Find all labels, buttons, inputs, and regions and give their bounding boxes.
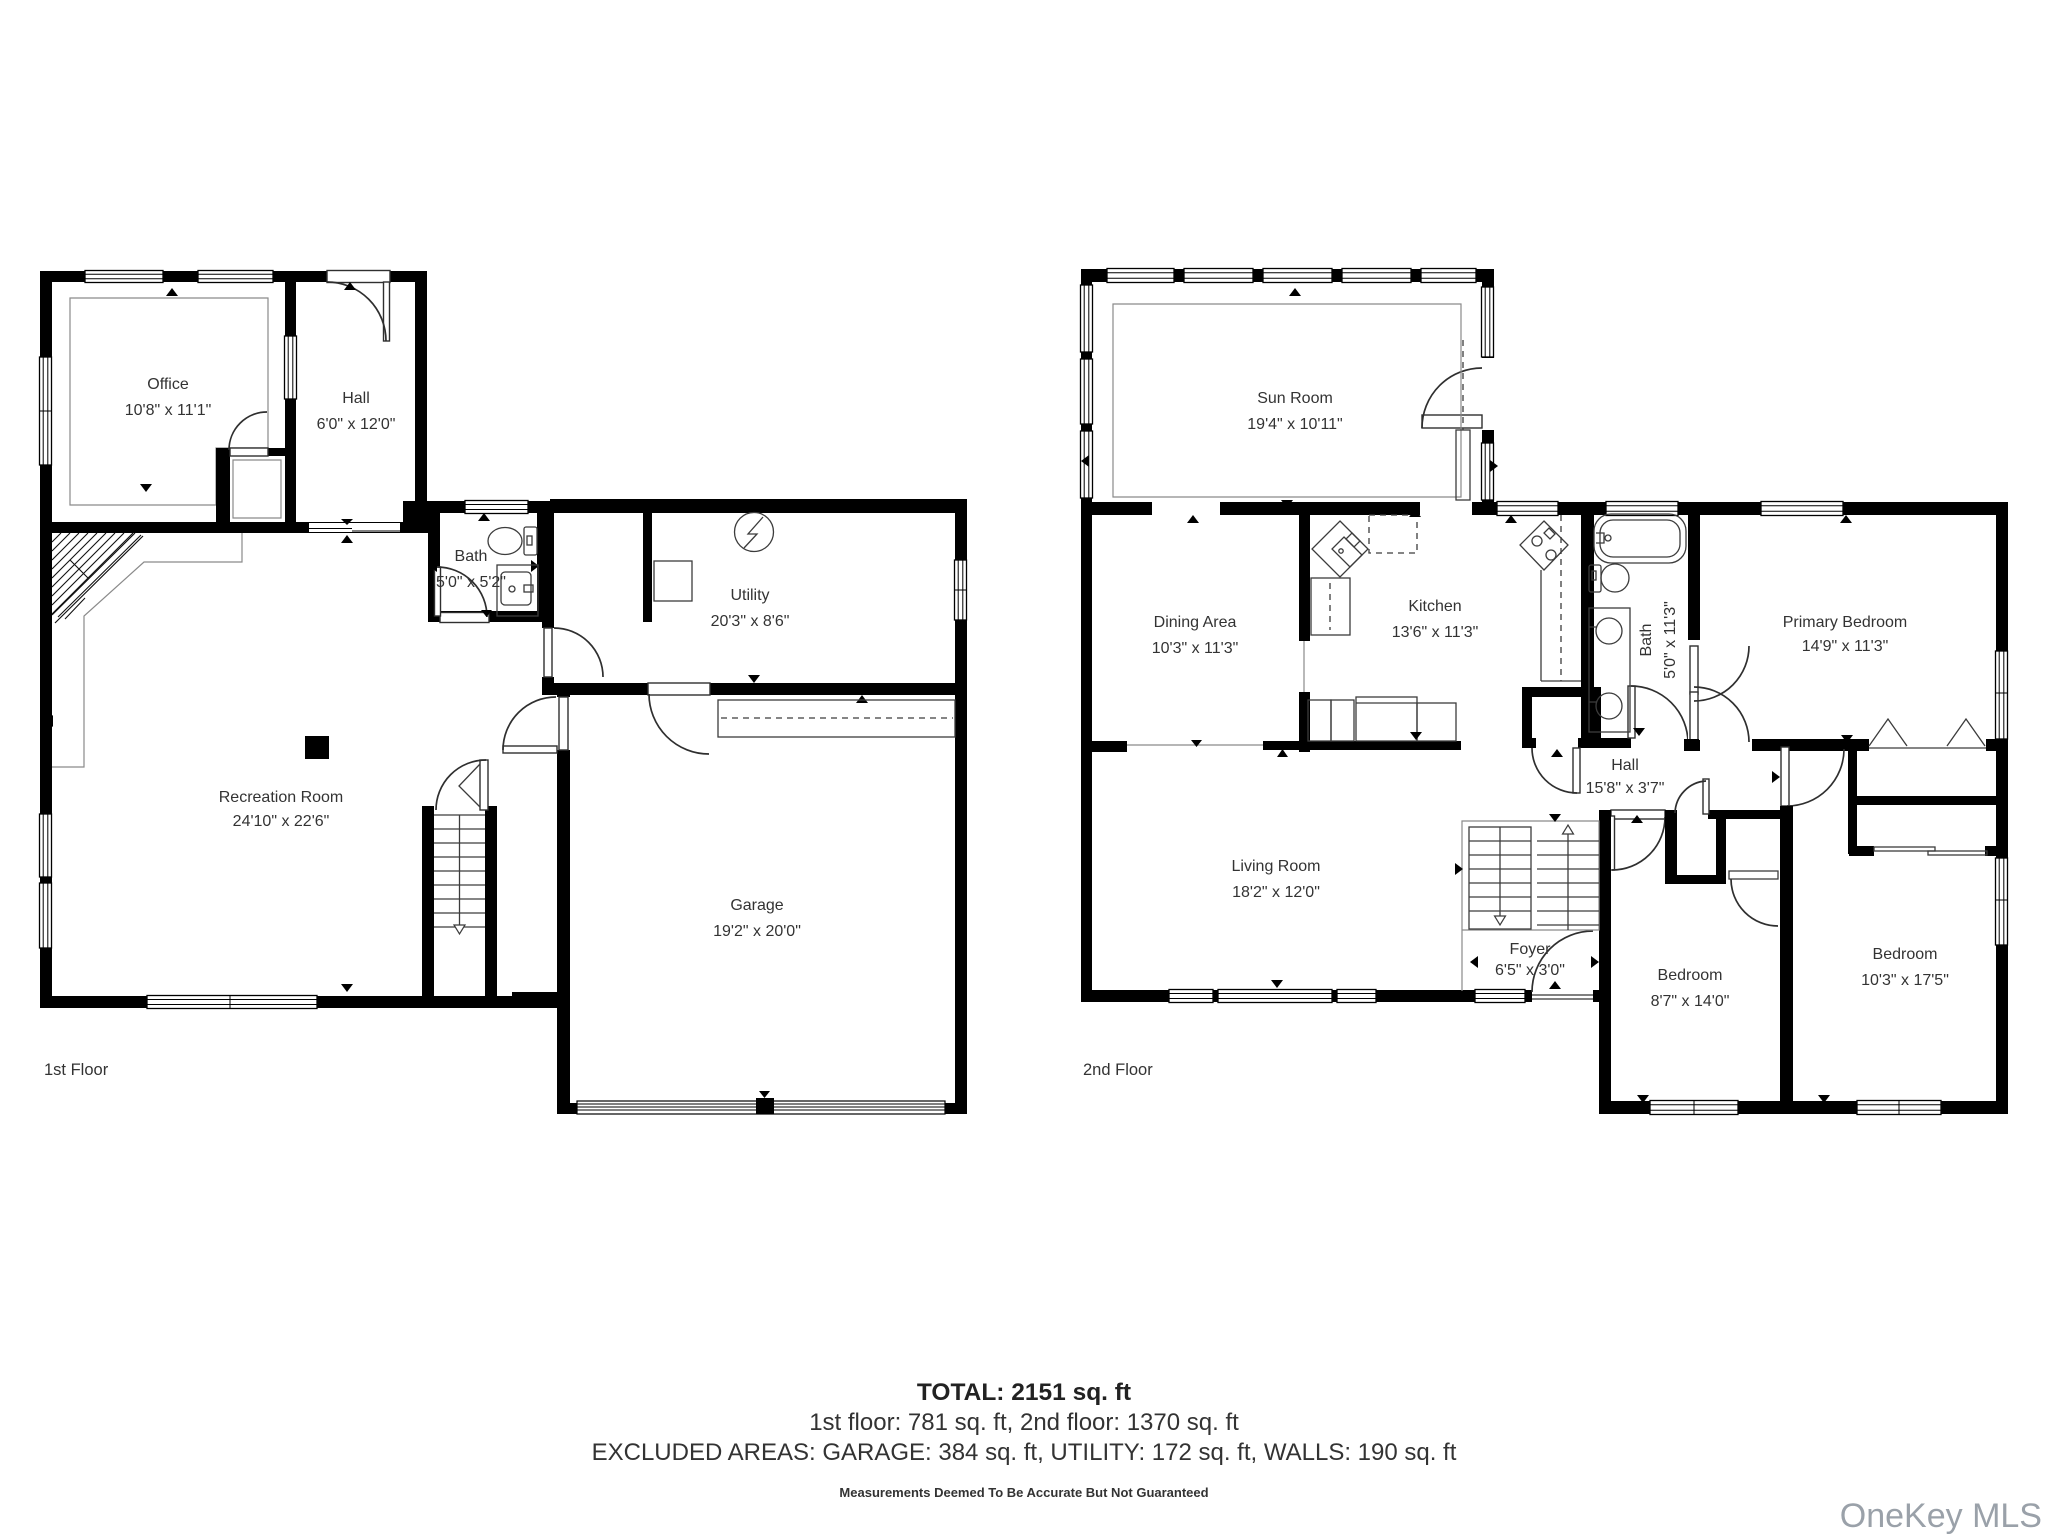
svg-text:Kitchen: Kitchen (1408, 598, 1461, 615)
svg-text:10'8" x 11'1": 10'8" x 11'1" (125, 402, 212, 419)
svg-text:Garage: Garage (730, 897, 783, 914)
svg-text:Hall: Hall (342, 390, 370, 407)
svg-text:10'3" x 17'5": 10'3" x 17'5" (1861, 972, 1949, 989)
svg-text:Utility: Utility (730, 587, 769, 604)
svg-text:6'0" x 12'0": 6'0" x 12'0" (317, 416, 396, 433)
svg-text:6'5" x 3'0": 6'5" x 3'0" (1495, 962, 1565, 979)
svg-text:5'0" x 11'3": 5'0" x 11'3" (1662, 601, 1679, 679)
svg-text:5'0" x 5'2": 5'0" x 5'2" (436, 574, 506, 591)
svg-text:Bedroom: Bedroom (1658, 967, 1723, 984)
svg-text:Office: Office (147, 376, 189, 393)
svg-text:13'6" x 11'3": 13'6" x 11'3" (1392, 624, 1479, 641)
svg-text:Living Room: Living Room (1232, 858, 1321, 875)
svg-text:Bath: Bath (1638, 624, 1655, 657)
svg-text:2nd Floor: 2nd Floor (1083, 1061, 1153, 1079)
svg-text:19'4" x 10'11": 19'4" x 10'11" (1247, 416, 1342, 433)
svg-text:Sun Room: Sun Room (1257, 390, 1333, 407)
svg-text:18'2" x 12'0": 18'2" x 12'0" (1232, 884, 1320, 901)
svg-text:24'10" x 22'6": 24'10" x 22'6" (233, 813, 330, 830)
svg-text:15'8" x 3'7": 15'8" x 3'7" (1586, 780, 1665, 797)
svg-text:Recreation Room: Recreation Room (219, 789, 344, 806)
svg-text:Hall: Hall (1611, 757, 1639, 774)
svg-text:10'3" x 11'3": 10'3" x 11'3" (1152, 640, 1239, 657)
svg-text:Primary Bedroom: Primary Bedroom (1783, 614, 1907, 631)
svg-text:1st floor: 781 sq. ft, 2nd flo: 1st floor: 781 sq. ft, 2nd floor: 1370 s… (809, 1409, 1239, 1436)
svg-text:14'9" x 11'3": 14'9" x 11'3" (1802, 638, 1889, 655)
svg-text:Measurements Deemed To Be Accu: Measurements Deemed To Be Accurate But N… (839, 1485, 1208, 1500)
svg-text:TOTAL: 2151 sq. ft: TOTAL: 2151 sq. ft (917, 1379, 1131, 1406)
svg-text:Dining Area: Dining Area (1154, 614, 1237, 631)
svg-text:EXCLUDED AREAS: GARAGE: 384 sq: EXCLUDED AREAS: GARAGE: 384 sq. ft, UTIL… (592, 1439, 1457, 1466)
svg-text:19'2" x 20'0": 19'2" x 20'0" (713, 923, 801, 940)
svg-text:1st Floor: 1st Floor (44, 1061, 109, 1079)
svg-text:OneKey MLS: OneKey MLS (1840, 1497, 2042, 1535)
svg-text:Bedroom: Bedroom (1873, 946, 1938, 963)
svg-text:8'7" x 14'0": 8'7" x 14'0" (1651, 993, 1730, 1010)
svg-text:20'3" x 8'6": 20'3" x 8'6" (711, 613, 790, 630)
svg-text:Bath: Bath (455, 548, 488, 565)
svg-text:Foyer: Foyer (1510, 941, 1552, 958)
